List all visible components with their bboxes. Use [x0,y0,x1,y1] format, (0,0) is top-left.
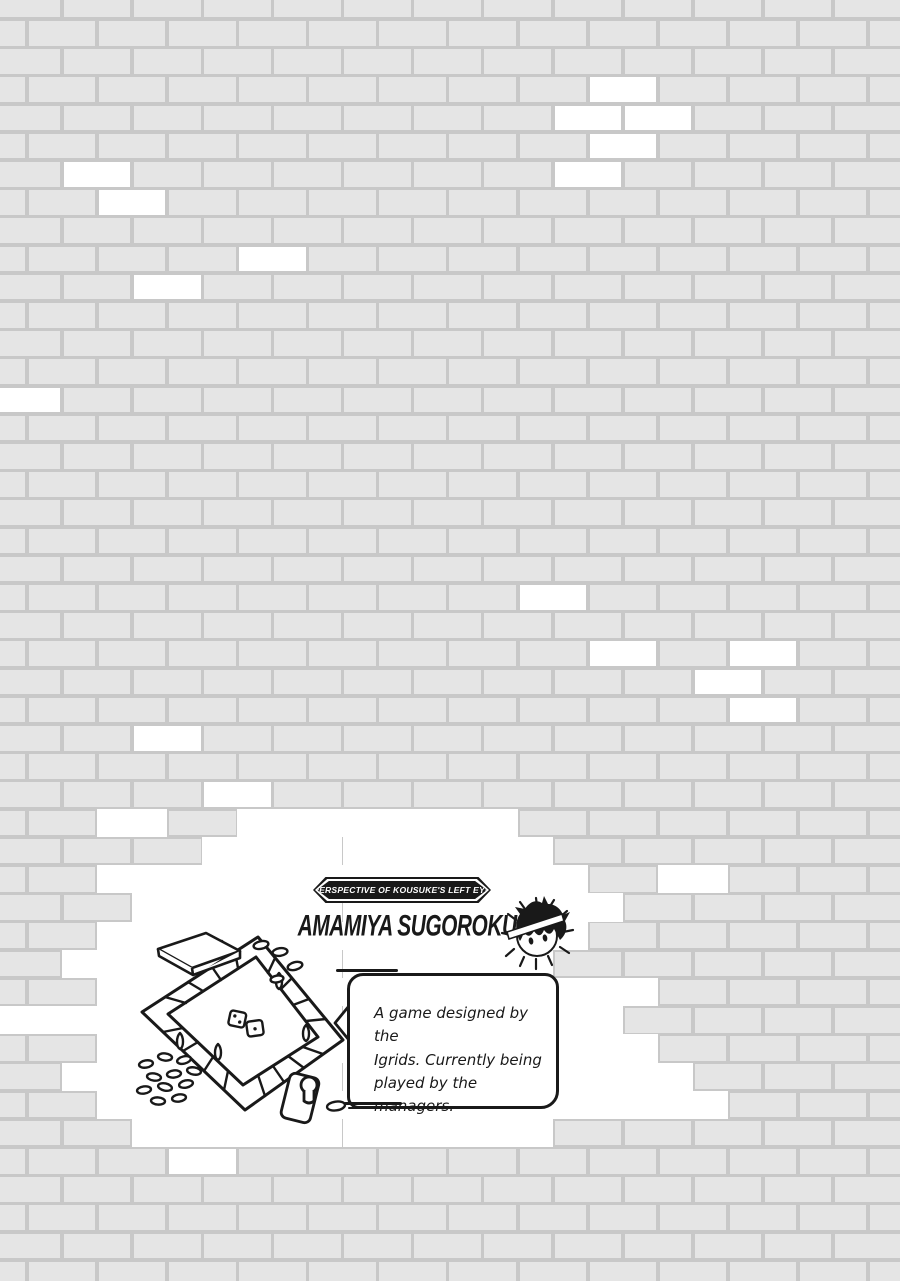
sugoroku-board-sketch [128,925,360,1131]
banner-label: PERSPECTIVE OF KOUSUKE'S LEFT EYE [313,885,491,895]
illustration-layer: PERSPECTIVE OF KOUSUKE'S LEFT EYE AMAMIY… [0,0,900,1281]
bubble-line: Igrids. Currently being [374,1049,556,1072]
banner-inner-border: PERSPECTIVE OF KOUSUKE'S LEFT EYE [315,879,489,901]
sketch-stroke [348,1107,396,1109]
sketch-stroke [344,1102,402,1105]
sketch-stroke [336,969,398,972]
bubble-line: played by the managers. [374,1072,556,1119]
banner-face: PERSPECTIVE OF KOUSUKE'S LEFT EYE [317,881,487,899]
dice [228,1010,264,1037]
booklet [158,933,240,975]
perspective-banner: PERSPECTIVE OF KOUSUKE'S LEFT EYE [313,877,491,903]
card-and-pawn [280,1072,346,1124]
speech-bubble: A game designed by the Igrids. Currently… [347,973,559,1109]
bubble-line: A game designed by the [374,1002,556,1049]
kousuke-face-icon [496,895,580,975]
